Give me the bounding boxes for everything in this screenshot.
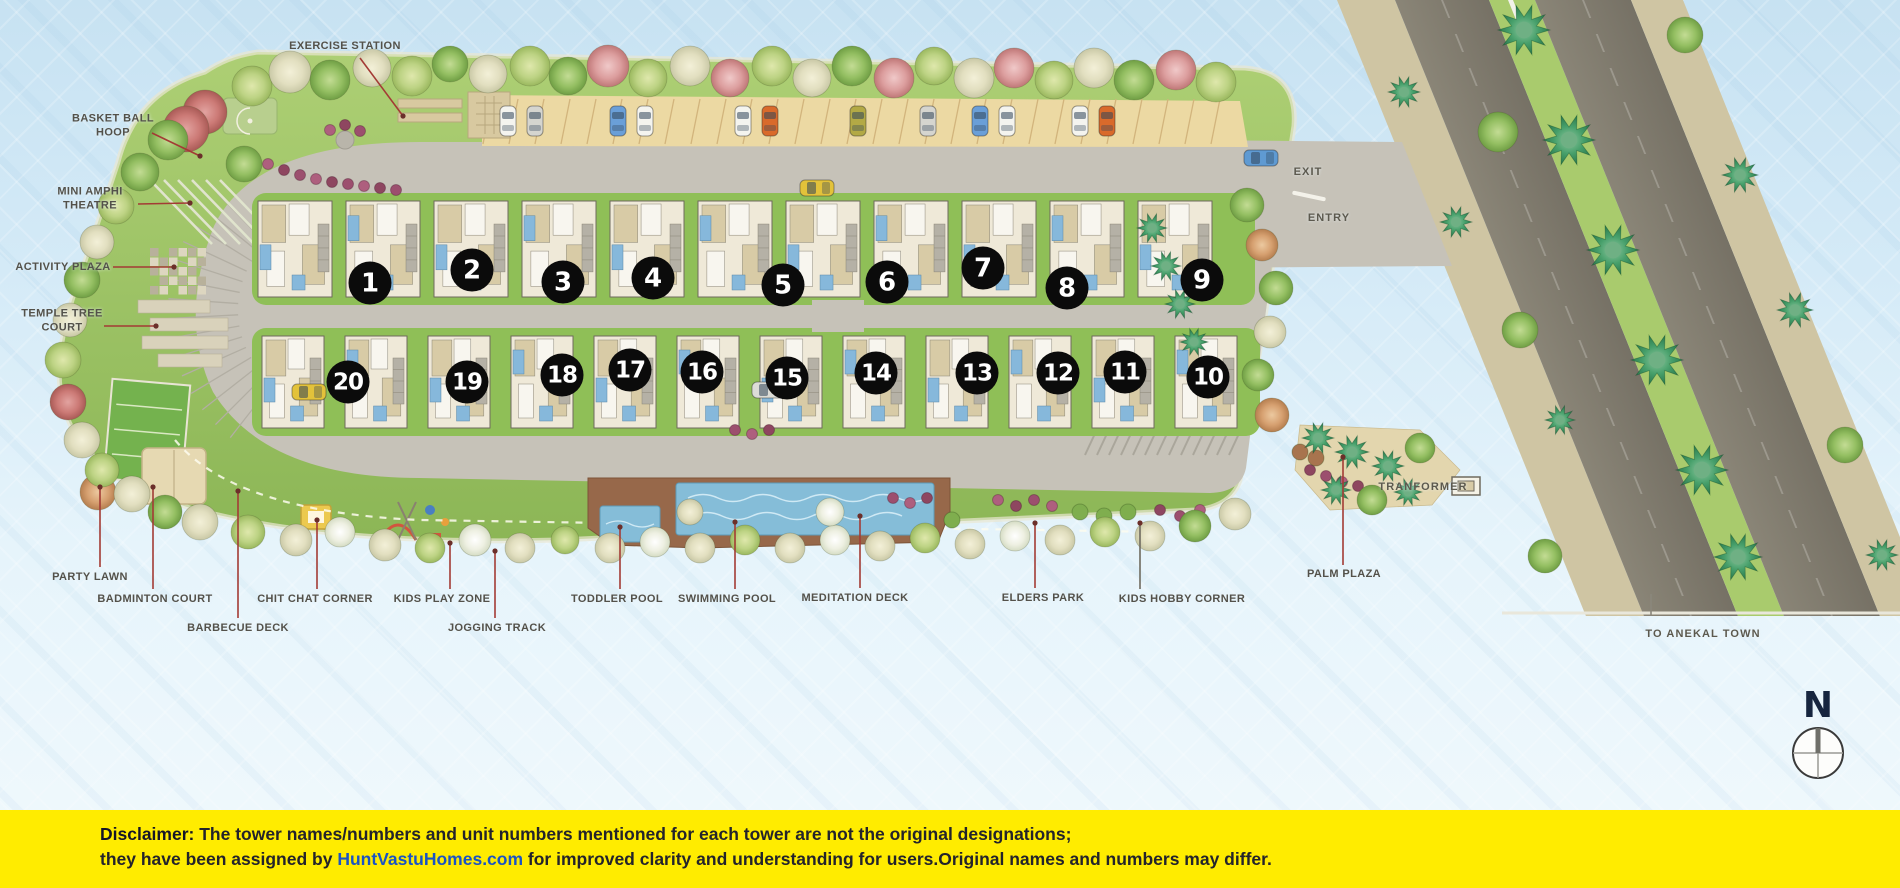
compass: N <box>1786 690 1850 787</box>
map-label-basket-ball-hoop: BASKET BALL HOOP <box>72 112 154 141</box>
tower-badge-18: 18 <box>541 354 584 397</box>
tower-badge-11: 11 <box>1104 351 1147 394</box>
tower-badge-20: 20 <box>327 361 370 404</box>
tower-badge-8: 8 <box>1046 267 1089 310</box>
badminton-court-shape <box>142 448 206 504</box>
tower-badge-3: 3 <box>542 261 585 304</box>
tower-badge-15: 15 <box>766 357 809 400</box>
map-label-tranformer: TRANFORMER <box>1378 480 1467 494</box>
highway <box>1333 0 1900 630</box>
tower-badge-10: 10 <box>1187 356 1230 399</box>
tower-badge-13: 13 <box>956 352 999 395</box>
map-label-swimming-pool: SWIMMING POOL <box>678 592 776 606</box>
disclaimer-line2: they have been assigned by HuntVastuHome… <box>100 847 1860 872</box>
map-label-elders-park: ELDERS PARK <box>1002 591 1084 605</box>
map-label-activity-plaza: ACTIVITY PLAZA <box>15 260 110 274</box>
map-label-entry: ENTRY <box>1308 211 1350 225</box>
master-plan-graphic <box>0 0 1900 810</box>
map-label-kids-play-zone: KIDS PLAY ZONE <box>394 592 491 606</box>
swimming-pool-water <box>676 483 934 535</box>
tower-badge-17: 17 <box>609 349 652 392</box>
tower-badge-5: 5 <box>762 264 805 307</box>
tower-badge-7: 7 <box>962 247 1005 290</box>
map-label-to-anekal-town: TO ANEKAL TOWN <box>1645 627 1760 641</box>
tower-badge-2: 2 <box>451 249 494 292</box>
site-plan-page: EXERCISE STATIONBASKET BALL HOOPMINI AMP… <box>0 0 1900 888</box>
map-label-temple-tree-court: TEMPLE TREE COURT <box>21 307 102 336</box>
map-label-jogging-track: JOGGING TRACK <box>448 621 546 635</box>
compass-north-label: N <box>1786 690 1850 722</box>
map-label-party-lawn: PARTY LAWN <box>52 570 128 584</box>
brand-name: HuntVastuHomes.com <box>337 849 523 869</box>
map-label-meditation-deck: MEDITATION DECK <box>801 591 908 605</box>
map-label-exit: EXIT <box>1294 165 1323 179</box>
tower-badge-16: 16 <box>681 351 724 394</box>
disclaimer-bar: Disclaimer: The tower names/numbers and … <box>0 810 1900 888</box>
compass-needle <box>1816 728 1821 753</box>
tower-badge-14: 14 <box>855 352 898 395</box>
tower-badge-12: 12 <box>1037 352 1080 395</box>
disclaimer-prefix: Disclaimer: <box>100 824 194 844</box>
tower-badge-9: 9 <box>1181 259 1224 302</box>
tower-badge-19: 19 <box>446 361 489 404</box>
tower-badge-6: 6 <box>866 261 909 304</box>
map-label-kids-hobby-corner: KIDS HOBBY CORNER <box>1119 592 1245 606</box>
map-label-badminton-court: BADMINTON COURT <box>97 592 212 606</box>
tower-badge-4: 4 <box>632 257 675 300</box>
disclaimer-line1: Disclaimer: The tower names/numbers and … <box>100 822 1860 847</box>
tower-badge-1: 1 <box>349 262 392 305</box>
courtyard-connector <box>812 300 864 332</box>
map-label-exercise-station: EXERCISE STATION <box>289 39 401 53</box>
map-label-toddler-pool: TODDLER POOL <box>571 592 663 606</box>
map-label-chit-chat-corner: CHIT CHAT CORNER <box>257 592 373 606</box>
map-label-barbecue-deck: BARBECUE DECK <box>187 621 289 635</box>
map-label-mini-amphi-theatre: MINI AMPHI THEATRE <box>57 185 122 214</box>
compass-rose-icon <box>1788 722 1848 782</box>
map-label-palm-plaza: PALM PLAZA <box>1307 567 1381 581</box>
